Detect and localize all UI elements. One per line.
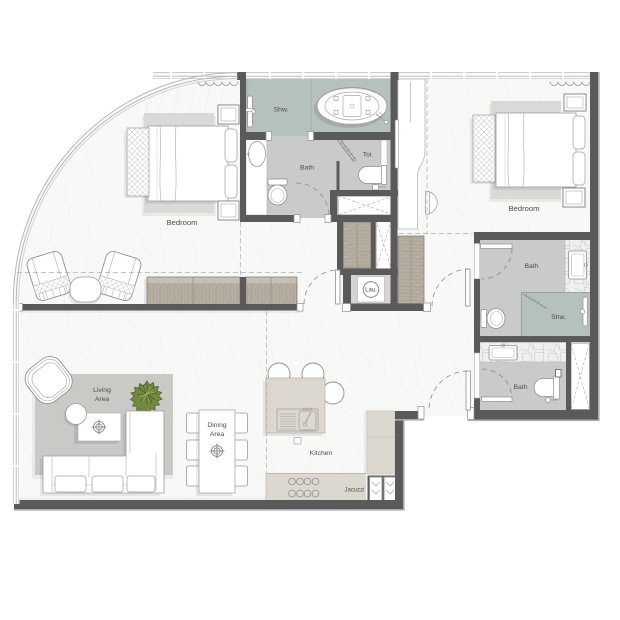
svg-text:Shw.: Shw. bbox=[274, 107, 289, 114]
svg-text:Bath: Bath bbox=[514, 384, 528, 391]
svg-text:Bath: Bath bbox=[525, 263, 539, 270]
svg-text:Dining: Dining bbox=[207, 422, 226, 429]
svg-text:Area: Area bbox=[95, 396, 110, 403]
svg-text:Shw.: Shw. bbox=[551, 314, 566, 321]
svg-text:Jacuzzi: Jacuzzi bbox=[344, 488, 364, 494]
svg-text:Bath: Bath bbox=[300, 165, 314, 172]
svg-text:Lau.: Lau. bbox=[365, 288, 377, 294]
svg-text:Kitchen: Kitchen bbox=[310, 450, 333, 457]
svg-text:Area: Area bbox=[210, 431, 225, 438]
svg-text:Bedroom: Bedroom bbox=[167, 218, 198, 227]
svg-text:Bedroom: Bedroom bbox=[509, 204, 540, 213]
svg-text:Toi.: Toi. bbox=[363, 152, 374, 159]
svg-text:Living: Living bbox=[93, 387, 111, 394]
